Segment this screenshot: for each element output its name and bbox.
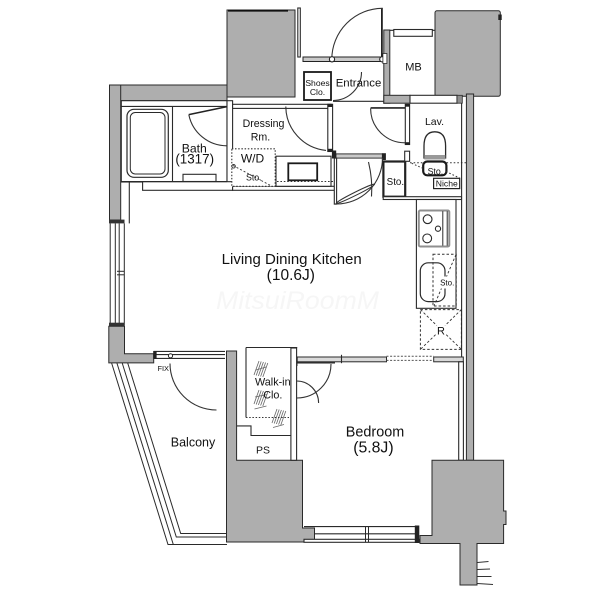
svg-text:Bedroom: Bedroom <box>346 424 404 440</box>
svg-text:R: R <box>437 326 445 338</box>
svg-text:Entrance: Entrance <box>336 78 382 90</box>
svg-text:Clo.: Clo. <box>310 87 325 97</box>
svg-text:W/D: W/D <box>241 152 265 166</box>
svg-text:Clo.: Clo. <box>263 390 282 402</box>
svg-text:Rm.: Rm. <box>251 131 270 143</box>
svg-text:(5.8J): (5.8J) <box>353 439 393 456</box>
svg-text:MB: MB <box>405 62 422 74</box>
svg-text:Dressing: Dressing <box>243 118 285 130</box>
svg-text:PS: PS <box>256 444 270 456</box>
svg-text:Sto.: Sto. <box>428 167 444 177</box>
svg-text:MitsuiRoomM: MitsuiRoomM <box>216 287 379 315</box>
svg-text:Lav.: Lav. <box>425 116 444 128</box>
svg-text:Balcony: Balcony <box>171 436 216 450</box>
svg-text:Niche: Niche <box>436 178 458 188</box>
svg-text:Sto.: Sto. <box>246 173 262 183</box>
svg-text:Sto.: Sto. <box>440 279 454 288</box>
svg-text:Sto.: Sto. <box>387 177 404 188</box>
svg-text:Walk-in: Walk-in <box>255 376 291 388</box>
svg-text:FIX: FIX <box>157 364 169 373</box>
svg-text:(10.6J): (10.6J) <box>267 267 315 284</box>
svg-text:Living Dining Kitchen: Living Dining Kitchen <box>222 251 362 268</box>
svg-text:(1317): (1317) <box>175 152 214 167</box>
